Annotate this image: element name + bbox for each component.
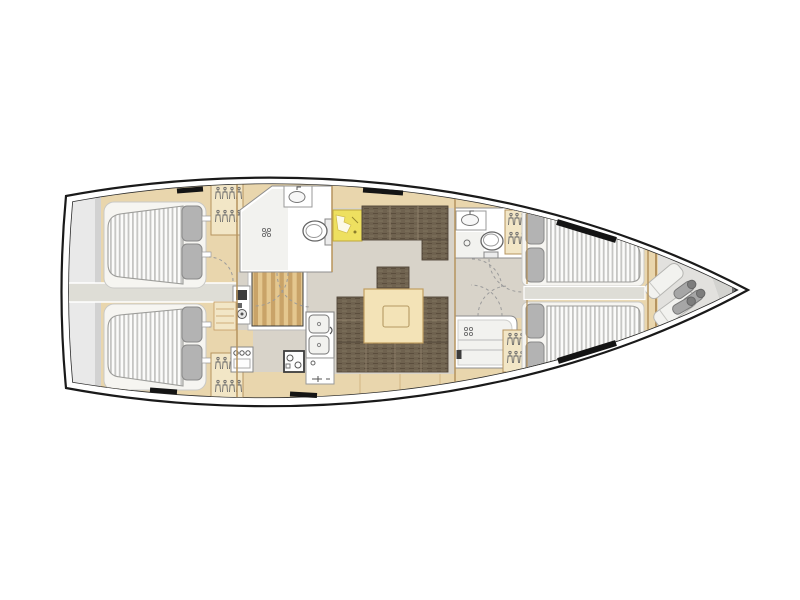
- toilet-tank: [484, 252, 498, 258]
- vent-latch: [202, 322, 211, 327]
- double-berth-mattress: [108, 309, 183, 386]
- aft-hanging-locker-port: [211, 183, 243, 235]
- vent-latch: [531, 378, 540, 383]
- pillow: [182, 307, 202, 342]
- pillow: [182, 345, 202, 380]
- stove-icon: [284, 351, 304, 372]
- vent-latch: [202, 358, 211, 363]
- fitting: [457, 350, 462, 359]
- vent-latch: [202, 216, 211, 221]
- chart-marker: [354, 231, 357, 234]
- toilet-bowl: [303, 221, 327, 241]
- yacht-floor-plan: [0, 0, 800, 600]
- deck-hatch: [177, 189, 203, 191]
- settee-bottom: [337, 342, 448, 372]
- sink-basin: [289, 192, 305, 203]
- pillow: [526, 304, 544, 338]
- deck-hatch: [290, 394, 317, 396]
- engine-gauge-needle: [241, 313, 244, 316]
- dining-table: [364, 289, 423, 343]
- sofa: [362, 206, 448, 240]
- galley-sink-unit: [306, 312, 334, 358]
- nav-station: [333, 210, 362, 241]
- double-berth-mattress: [108, 206, 183, 284]
- sofa-return: [422, 240, 448, 260]
- galley-appliance: [231, 347, 253, 372]
- toilet-bowl: [481, 232, 503, 250]
- sink-basin: [462, 215, 479, 226]
- head-sink: [456, 211, 486, 230]
- pillow: [182, 206, 202, 241]
- deck-hatch: [150, 390, 177, 392]
- floor-plan-canvas: [0, 0, 800, 600]
- vent-latch: [202, 252, 211, 257]
- stool: [377, 267, 409, 288]
- pillow: [526, 248, 544, 282]
- center-aisle: [524, 287, 645, 300]
- sink-basin: [309, 336, 329, 354]
- table-top: [364, 289, 423, 343]
- deck-hatch: [363, 190, 403, 193]
- oven-box: [306, 358, 334, 384]
- locker-cabinet: [211, 183, 243, 235]
- forward-walkway-floor: [455, 258, 527, 318]
- pillow: [182, 244, 202, 279]
- stove-top: [284, 351, 304, 372]
- sink-basin: [309, 315, 329, 333]
- head-sink: [284, 186, 312, 207]
- galley-oven-unit: [306, 358, 334, 384]
- interior: [66, 160, 734, 450]
